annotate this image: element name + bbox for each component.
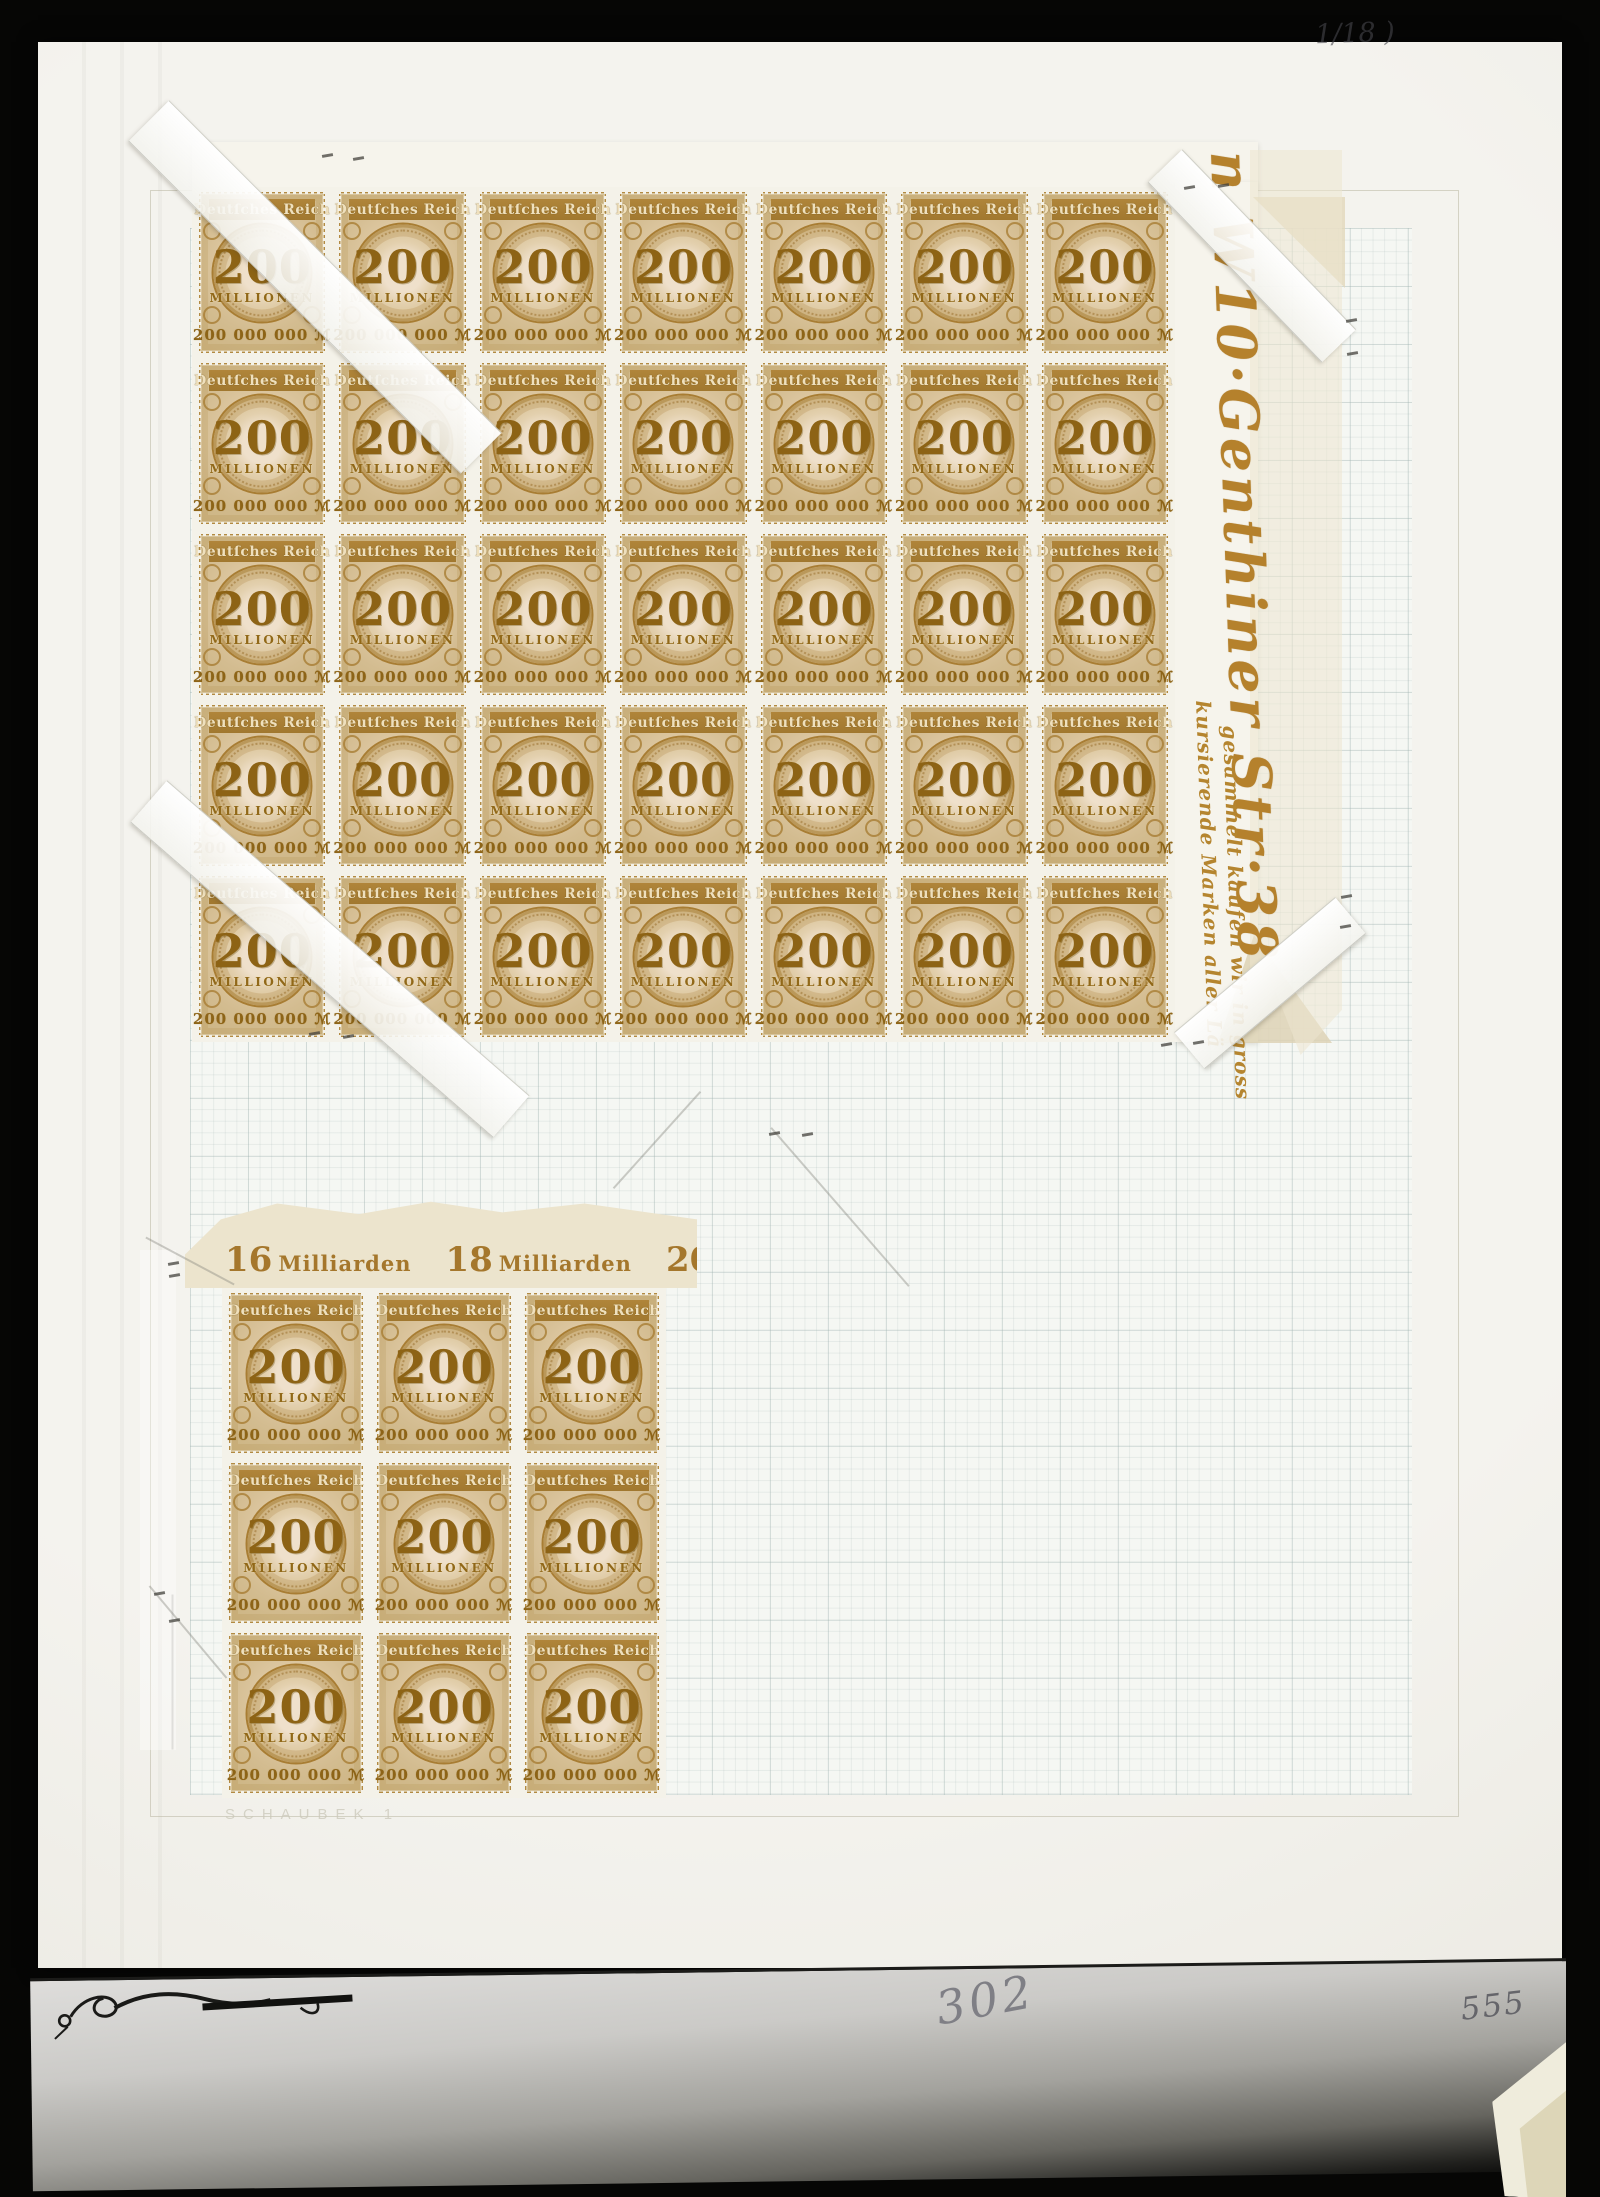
stamp-country-band: Deutſches Reich — [911, 199, 1017, 220]
stamp-cell: Deutſches Reich 200 MILLIONEN 200 000 00… — [1035, 358, 1175, 529]
stamp-value-line: 200 000 000 ℳ — [755, 326, 894, 344]
stamp-face-value: 200 — [542, 1684, 641, 1730]
stamp-face-value: 200 — [246, 1344, 345, 1390]
stamp-album-photo: 302 555 Deutſches Reich 200 MIL — [0, 0, 1600, 2197]
corner-rosette-icon — [341, 1406, 359, 1424]
stamp-country-band: Deutſches Reich — [1052, 883, 1158, 904]
corner-rosette-icon — [381, 1406, 399, 1424]
stamp-cell: Deutſches Reich 200 MILLIONEN 200 000 00… — [613, 700, 753, 871]
stamp-center: 200 MILLIONEN — [901, 391, 1027, 497]
stamp-cell: Deutſches Reich 200 MILLIONEN 200 000 00… — [370, 1628, 518, 1798]
corner-rosette-icon — [203, 990, 221, 1008]
corner-rosette-icon — [765, 306, 783, 324]
corner-rosette-icon — [1146, 477, 1164, 495]
corner-rosette-icon — [233, 1576, 251, 1594]
stamp-value-line: 200 000 000 ℳ — [755, 497, 894, 515]
stamp-value-word: MILLIONEN — [539, 1391, 644, 1405]
stamp-value-line: 200 000 000 ℳ — [227, 1766, 366, 1784]
stamp-country-band: Deutſches Reich — [771, 370, 877, 391]
stamp-cell: Deutſches Reich 200 MILLIONEN 200 000 00… — [1035, 529, 1175, 700]
stamp-face-value: 200 — [634, 415, 733, 461]
stamp-face-value: 200 — [774, 415, 873, 461]
stamp-value-line: 200 000 000 ℳ — [755, 1010, 894, 1028]
stamp-200-millionen: Deutſches Reich 200 MILLIONEN 200 000 00… — [525, 1633, 659, 1793]
corner-rosette-icon — [343, 564, 361, 582]
stamp-value-word: MILLIONEN — [350, 633, 455, 647]
stamp-value-word: MILLIONEN — [539, 1731, 644, 1745]
corner-rosette-icon — [489, 1663, 507, 1681]
corner-rosette-icon — [303, 393, 321, 411]
stamp-face-value: 200 — [774, 928, 873, 974]
stamp-value-line: 200 000 000 ℳ — [474, 326, 613, 344]
stamp-value-line: 200 000 000 ℳ — [895, 326, 1034, 344]
stamp-country-band: Deutſches Reich — [630, 712, 736, 733]
stamp-country-band: Deutſches Reich — [209, 370, 315, 391]
stamp-cell: Deutſches Reich 200 MILLIONEN 200 000 00… — [613, 358, 753, 529]
stamp-value-line: 200 000 000 ℳ — [227, 1596, 366, 1614]
corner-rosette-icon — [624, 990, 642, 1008]
stamp-country-band: Deutſches Reich — [490, 883, 596, 904]
stamp-value-word: MILLIONEN — [1052, 291, 1157, 305]
stamp-sheet-block-bottom: 16Milliarden 18Milliarden 20Milliarden D… — [185, 1200, 697, 1288]
corner-rosette-icon — [1046, 906, 1064, 924]
corner-rosette-icon — [484, 564, 502, 582]
corner-rosette-icon — [624, 477, 642, 495]
corner-rosette-icon — [584, 990, 602, 1008]
stamp-center: 200 MILLIONEN — [1042, 220, 1168, 326]
stamp-cell: Deutſches Reich 200 MILLIONEN 200 000 00… — [754, 529, 894, 700]
corner-rosette-icon — [1006, 306, 1024, 324]
stamp-cell: Deutſches Reich 200 MILLIONEN 200 000 00… — [1035, 187, 1175, 358]
corner-rosette-icon — [484, 990, 502, 1008]
stamp-200-millionen: Deutſches Reich 200 MILLIONEN 200 000 00… — [901, 534, 1027, 695]
stamp-200-millionen: Deutſches Reich 200 MILLIONEN 200 000 00… — [377, 1463, 511, 1623]
corner-rosette-icon — [1146, 735, 1164, 753]
stamp-center: 200 MILLIONEN — [377, 1321, 511, 1426]
stamp-value-line: 200 000 000 ℳ — [895, 1010, 1034, 1028]
handwritten-corner-note: 1/18 ) — [1314, 17, 1395, 51]
corner-rosette-icon — [489, 1406, 507, 1424]
stamp-country-band: Deutſches Reich — [535, 1300, 649, 1321]
stamp-center: 200 MILLIONEN — [1042, 904, 1168, 1010]
book-edge-shadow — [1566, 1890, 1600, 2197]
corner-rosette-icon — [444, 477, 462, 495]
corner-rosette-icon — [765, 990, 783, 1008]
stamp-200-millionen: Deutſches Reich 200 MILLIONEN 200 000 00… — [480, 192, 606, 353]
corner-rosette-icon — [725, 990, 743, 1008]
corner-rosette-icon — [584, 564, 602, 582]
stamp-country-band: Deutſches Reich — [349, 883, 455, 904]
stamp-value-line: 200 000 000 ℳ — [523, 1426, 662, 1444]
stamp-country-band: Deutſches Reich — [535, 1470, 649, 1491]
stamp-face-value: 200 — [494, 586, 593, 632]
stamp-country-band: Deutſches Reich — [911, 883, 1017, 904]
stamp-200-millionen: Deutſches Reich 200 MILLIONEN 200 000 00… — [620, 705, 746, 866]
stamp-country-band: Deutſches Reich — [771, 199, 877, 220]
corner-rosette-icon — [1146, 222, 1164, 240]
stamp-face-value: 200 — [246, 1684, 345, 1730]
stamp-country-band: Deutſches Reich — [630, 199, 736, 220]
stamp-value-word: MILLIONEN — [210, 975, 315, 989]
stamp-200-millionen: Deutſches Reich 200 MILLIONEN 200 000 00… — [199, 363, 325, 524]
corner-rosette-icon — [624, 906, 642, 924]
corner-rosette-icon — [1046, 477, 1064, 495]
corner-rosette-icon — [203, 906, 221, 924]
corner-rosette-icon — [381, 1323, 399, 1341]
stamp-cell: Deutſches Reich 200 MILLIONEN 200 000 00… — [894, 187, 1034, 358]
stamp-200-millionen: Deutſches Reich 200 MILLIONEN 200 000 00… — [199, 534, 325, 695]
stamp-center: 200 MILLIONEN — [901, 562, 1027, 668]
stamp-center: 200 MILLIONEN — [525, 1661, 659, 1766]
stamp-face-value: 200 — [634, 757, 733, 803]
corner-rosette-icon — [484, 906, 502, 924]
stamp-center: 200 MILLIONEN — [199, 562, 325, 668]
stamp-center: 200 MILLIONEN — [229, 1661, 363, 1766]
stamp-value-word: MILLIONEN — [771, 804, 876, 818]
stamp-country-band: Deutſches Reich — [911, 541, 1017, 562]
corner-rosette-icon — [584, 906, 602, 924]
sheet-top-margin — [192, 142, 1258, 188]
stamp-face-value: 200 — [1055, 757, 1154, 803]
stamp-face-value: 200 — [1055, 415, 1154, 461]
stamp-face-value: 200 — [915, 928, 1014, 974]
corner-rosette-icon — [725, 564, 743, 582]
stamp-face-value: 200 — [774, 757, 873, 803]
stamp-cell: Deutſches Reich 200 MILLIONEN 200 000 00… — [1035, 700, 1175, 871]
stamp-country-band: Deutſches Reich — [239, 1470, 353, 1491]
corner-rosette-icon — [1046, 735, 1064, 753]
stamp-face-value: 200 — [542, 1344, 641, 1390]
stamp-value-line: 200 000 000 ℳ — [614, 668, 753, 686]
stamp-200-millionen: Deutſches Reich 200 MILLIONEN 200 000 00… — [1042, 705, 1168, 866]
corner-rosette-icon — [489, 1493, 507, 1511]
printed-flourish-ornament — [52, 1965, 363, 2043]
stamp-center: 200 MILLIONEN — [199, 733, 325, 839]
corner-rosette-icon — [444, 648, 462, 666]
corner-rosette-icon — [905, 648, 923, 666]
stamp-cell: Deutſches Reich 200 MILLIONEN 200 000 00… — [222, 1458, 370, 1628]
stamp-cell: Deutſches Reich 200 MILLIONEN 200 000 00… — [222, 1288, 370, 1458]
corner-rosette-icon — [203, 477, 221, 495]
stamp-value-line: 200 000 000 ℳ — [333, 668, 472, 686]
stamp-200-millionen: Deutſches Reich 200 MILLIONEN 200 000 00… — [1042, 876, 1168, 1037]
stamp-face-value: 200 — [915, 244, 1014, 290]
stamp-value-word: MILLIONEN — [350, 804, 455, 818]
corner-rosette-icon — [905, 477, 923, 495]
corner-rosette-icon — [341, 1323, 359, 1341]
stamp-value-word: MILLIONEN — [912, 291, 1017, 305]
corner-rosette-icon — [1046, 648, 1064, 666]
stamp-cell: Deutſches Reich 200 MILLIONEN 200 000 00… — [518, 1288, 666, 1458]
corner-rosette-icon — [905, 990, 923, 1008]
corner-rosette-icon — [343, 648, 361, 666]
corner-rosette-icon — [865, 906, 883, 924]
corner-rosette-icon — [303, 564, 321, 582]
corner-rosette-icon — [1146, 906, 1164, 924]
stamp-center: 200 MILLIONEN — [1042, 562, 1168, 668]
milliarden-label: 18Milliarden — [445, 1240, 631, 1280]
stamp-value-line: 200 000 000 ℳ — [333, 497, 472, 515]
corner-rosette-icon — [905, 819, 923, 837]
corner-rosette-icon — [484, 819, 502, 837]
corner-rosette-icon — [444, 306, 462, 324]
stamp-200-millionen: Deutſches Reich 200 MILLIONEN 200 000 00… — [761, 534, 887, 695]
corner-rosette-icon — [1006, 648, 1024, 666]
corner-rosette-icon — [765, 222, 783, 240]
corner-rosette-icon — [1146, 564, 1164, 582]
corner-rosette-icon — [1006, 222, 1024, 240]
stamp-center: 200 MILLIONEN — [761, 904, 887, 1010]
stamp-value-word: MILLIONEN — [243, 1731, 348, 1745]
corner-rosette-icon — [765, 648, 783, 666]
stamp-face-value: 200 — [634, 244, 733, 290]
stamp-200-millionen: Deutſches Reich 200 MILLIONEN 200 000 00… — [761, 876, 887, 1037]
corner-rosette-icon — [865, 222, 883, 240]
stamp-value-line: 200 000 000 ℳ — [614, 326, 753, 344]
stamp-country-band: Deutſches Reich — [1052, 541, 1158, 562]
corner-rosette-icon — [765, 735, 783, 753]
stamp-center: 200 MILLIONEN — [761, 562, 887, 668]
stamp-face-value: 200 — [213, 415, 312, 461]
stamp-cell: Deutſches Reich 200 MILLIONEN 200 000 00… — [332, 529, 472, 700]
stamp-value-word: MILLIONEN — [490, 633, 595, 647]
stamp-country-band: Deutſches Reich — [1052, 712, 1158, 733]
stamp-country-band: Deutſches Reich — [490, 199, 596, 220]
album-page: Deutſches Reich 200 MILLIONEN 200 000 00… — [38, 42, 1562, 1968]
stamp-value-word: MILLIONEN — [771, 633, 876, 647]
corner-rosette-icon — [1046, 306, 1064, 324]
corner-rosette-icon — [303, 735, 321, 753]
corner-rosette-icon — [725, 819, 743, 837]
stamp-country-band: Deutſches Reich — [239, 1300, 353, 1321]
stamp-200-millionen: Deutſches Reich 200 MILLIONEN 200 000 00… — [339, 705, 465, 866]
corner-rosette-icon — [203, 306, 221, 324]
stamp-country-band: Deutſches Reich — [1052, 199, 1158, 220]
stamp-200-millionen: Deutſches Reich 200 MILLIONEN 200 000 00… — [339, 534, 465, 695]
stamp-value-line: 200 000 000 ℳ — [1035, 1010, 1174, 1028]
stamp-value-line: 200 000 000 ℳ — [193, 326, 332, 344]
stamp-200-millionen: Deutſches Reich 200 MILLIONEN 200 000 00… — [901, 705, 1027, 866]
stamp-face-value: 200 — [213, 757, 312, 803]
stamp-value-word: MILLIONEN — [243, 1561, 348, 1575]
stamp-value-word: MILLIONEN — [631, 633, 736, 647]
stamp-cell: Deutſches Reich 200 MILLIONEN 200 000 00… — [1035, 871, 1175, 1042]
stamp-cell: Deutſches Reich 200 MILLIONEN 200 000 00… — [894, 871, 1034, 1042]
corner-rosette-icon — [529, 1576, 547, 1594]
stamp-cell: Deutſches Reich 200 MILLIONEN 200 000 00… — [473, 187, 613, 358]
corner-rosette-icon — [865, 735, 883, 753]
stamp-face-value: 200 — [213, 586, 312, 632]
corner-rosette-icon — [1006, 819, 1024, 837]
stamp-cell: Deutſches Reich 200 MILLIONEN 200 000 00… — [332, 700, 472, 871]
stamp-value-line: 200 000 000 ℳ — [895, 839, 1034, 857]
corner-rosette-icon — [341, 1663, 359, 1681]
stamp-value-word: MILLIONEN — [243, 1391, 348, 1405]
stamp-value-line: 200 000 000 ℳ — [474, 1010, 613, 1028]
stamp-value-line: 200 000 000 ℳ — [755, 839, 894, 857]
stamp-200-millionen: Deutſches Reich 200 MILLIONEN 200 000 00… — [229, 1293, 363, 1453]
stamp-value-word: MILLIONEN — [210, 462, 315, 476]
stamp-value-word: MILLIONEN — [539, 1561, 644, 1575]
corner-rosette-icon — [484, 222, 502, 240]
stamp-value-word: MILLIONEN — [210, 804, 315, 818]
stamp-center: 200 MILLIONEN — [620, 562, 746, 668]
stamp-value-line: 200 000 000 ℳ — [755, 668, 894, 686]
corner-rosette-icon — [1006, 990, 1024, 1008]
corner-rosette-icon — [725, 477, 743, 495]
stamp-country-band: Deutſches Reich — [490, 370, 596, 391]
stamp-value-line: 200 000 000 ℳ — [614, 839, 753, 857]
stamp-200-millionen: Deutſches Reich 200 MILLIONEN 200 000 00… — [1042, 363, 1168, 524]
corner-rosette-icon — [765, 819, 783, 837]
corner-rosette-icon — [341, 1746, 359, 1764]
corner-rosette-icon — [203, 564, 221, 582]
stamp-200-millionen: Deutſches Reich 200 MILLIONEN 200 000 00… — [620, 192, 746, 353]
corner-rosette-icon — [233, 1493, 251, 1511]
stamp-face-value: 200 — [634, 928, 733, 974]
stamp-center: 200 MILLIONEN — [901, 904, 1027, 1010]
stamp-country-band: Deutſches Reich — [349, 541, 455, 562]
stamp-face-value: 200 — [915, 757, 1014, 803]
corner-rosette-icon — [1006, 906, 1024, 924]
corner-rosette-icon — [444, 906, 462, 924]
corner-rosette-icon — [725, 735, 743, 753]
stamp-cell: Deutſches Reich 200 MILLIONEN 200 000 00… — [613, 529, 753, 700]
stamp-face-value: 200 — [353, 586, 452, 632]
corner-rosette-icon — [865, 819, 883, 837]
stamp-center: 200 MILLIONEN — [229, 1321, 363, 1426]
corner-rosette-icon — [905, 906, 923, 924]
stamp-country-band: Deutſches Reich — [630, 541, 736, 562]
stamp-cell: Deutſches Reich 200 MILLIONEN 200 000 00… — [222, 1628, 370, 1798]
corner-rosette-icon — [584, 648, 602, 666]
stamp-value-word: MILLIONEN — [490, 804, 595, 818]
corner-rosette-icon — [484, 477, 502, 495]
stamp-country-band: Deutſches Reich — [911, 712, 1017, 733]
stamp-center: 200 MILLIONEN — [525, 1321, 659, 1426]
corner-rosette-icon — [584, 477, 602, 495]
corner-rosette-icon — [444, 990, 462, 1008]
corner-rosette-icon — [624, 819, 642, 837]
stamp-cell: Deutſches Reich 200 MILLIONEN 200 000 00… — [473, 358, 613, 529]
stamp-value-line: 200 000 000 ℳ — [474, 839, 613, 857]
stamp-200-millionen: Deutſches Reich 200 MILLIONEN 200 000 00… — [480, 363, 606, 524]
corner-rosette-icon — [444, 735, 462, 753]
corner-rosette-icon — [341, 1576, 359, 1594]
stamp-value-word: MILLIONEN — [490, 975, 595, 989]
sheet-counting-margin: 16Milliarden 18Milliarden 20Milliarden — [185, 1200, 697, 1288]
stamp-face-value: 200 — [774, 586, 873, 632]
corner-rosette-icon — [1046, 819, 1064, 837]
corner-rosette-icon — [343, 819, 361, 837]
stamp-200-millionen: Deutſches Reich 200 MILLIONEN 200 000 00… — [620, 876, 746, 1037]
stamp-200-millionen: Deutſches Reich 200 MILLIONEN 200 000 00… — [377, 1633, 511, 1793]
stamp-cell: Deutſches Reich 200 MILLIONEN 200 000 00… — [613, 187, 753, 358]
stamp-value-word: MILLIONEN — [490, 462, 595, 476]
corner-rosette-icon — [489, 1746, 507, 1764]
corner-rosette-icon — [1146, 819, 1164, 837]
corner-rosette-icon — [489, 1323, 507, 1341]
bottom-sheet-grid: Deutſches Reich 200 MILLIONEN 200 000 00… — [222, 1288, 666, 1798]
corner-rosette-icon — [343, 906, 361, 924]
stamp-200-millionen: Deutſches Reich 200 MILLIONEN 200 000 00… — [901, 876, 1027, 1037]
corner-rosette-icon — [203, 735, 221, 753]
stamp-value-line: 200 000 000 ℳ — [193, 1010, 332, 1028]
stamp-center: 200 MILLIONEN — [1042, 391, 1168, 497]
corner-rosette-icon — [637, 1323, 655, 1341]
corner-rosette-icon — [529, 1493, 547, 1511]
corner-rosette-icon — [444, 819, 462, 837]
corner-rosette-icon — [203, 393, 221, 411]
stamp-value-line: 200 000 000 ℳ — [1035, 668, 1174, 686]
corner-rosette-icon — [865, 477, 883, 495]
stamp-center: 200 MILLIONEN — [339, 733, 465, 839]
stamp-face-value: 200 — [353, 244, 452, 290]
corner-rosette-icon — [341, 1493, 359, 1511]
stamp-center: 200 MILLIONEN — [620, 733, 746, 839]
corner-rosette-icon — [303, 477, 321, 495]
corner-rosette-icon — [624, 735, 642, 753]
corner-rosette-icon — [865, 564, 883, 582]
stamp-face-value: 200 — [634, 586, 733, 632]
corner-rosette-icon — [1046, 222, 1064, 240]
stamp-value-word: MILLIONEN — [912, 462, 1017, 476]
stamp-200-millionen: Deutſches Reich 200 MILLIONEN 200 000 00… — [1042, 534, 1168, 695]
stamp-200-millionen: Deutſches Reich 200 MILLIONEN 200 000 00… — [480, 705, 606, 866]
stamp-value-word: MILLIONEN — [631, 804, 736, 818]
stamp-value-word: MILLIONEN — [210, 633, 315, 647]
stamp-200-millionen: Deutſches Reich 200 MILLIONEN 200 000 00… — [620, 534, 746, 695]
stamp-200-millionen: Deutſches Reich 200 MILLIONEN 200 000 00… — [761, 705, 887, 866]
corner-rosette-icon — [303, 819, 321, 837]
corner-rosette-icon — [1146, 306, 1164, 324]
corner-rosette-icon — [484, 306, 502, 324]
stamp-center: 200 MILLIONEN — [620, 904, 746, 1010]
stamp-200-millionen: Deutſches Reich 200 MILLIONEN 200 000 00… — [480, 534, 606, 695]
corner-rosette-icon — [725, 393, 743, 411]
stamp-value-line: 200 000 000 ℳ — [614, 1010, 753, 1028]
corner-rosette-icon — [1046, 564, 1064, 582]
corner-rosette-icon — [637, 1663, 655, 1681]
stamp-value-word: MILLIONEN — [631, 462, 736, 476]
stamp-country-band: Deutſches Reich — [239, 1640, 353, 1661]
stamp-value-line: 200 000 000 ℳ — [375, 1596, 514, 1614]
stamp-center: 200 MILLIONEN — [377, 1661, 511, 1766]
stamp-cell: Deutſches Reich 200 MILLIONEN 200 000 00… — [613, 871, 753, 1042]
stamp-center: 200 MILLIONEN — [901, 733, 1027, 839]
stamp-center: 200 MILLIONEN — [199, 391, 325, 497]
corner-rosette-icon — [584, 735, 602, 753]
pocket-crease-line — [172, 1595, 174, 1750]
stamp-200-millionen: Deutſches Reich 200 MILLIONEN 200 000 00… — [229, 1463, 363, 1623]
stamp-value-word: MILLIONEN — [771, 975, 876, 989]
handwritten-page-number: 302 — [931, 1964, 1039, 2036]
album-imprint: SCHAUBEK 1 — [225, 1806, 400, 1823]
stamp-face-value: 200 — [494, 928, 593, 974]
corner-rosette-icon — [725, 906, 743, 924]
stamp-center: 200 MILLIONEN — [480, 733, 606, 839]
corner-rosette-icon — [905, 222, 923, 240]
stamp-face-value: 200 — [353, 757, 452, 803]
stamp-200-millionen: Deutſches Reich 200 MILLIONEN 200 000 00… — [525, 1293, 659, 1453]
corner-rosette-icon — [905, 735, 923, 753]
stamp-200-millionen: Deutſches Reich 200 MILLIONEN 200 000 00… — [1042, 192, 1168, 353]
stamp-center: 200 MILLIONEN — [480, 391, 606, 497]
stamp-center: 200 MILLIONEN — [761, 220, 887, 326]
corner-rosette-icon — [529, 1663, 547, 1681]
stamp-face-value: 200 — [1055, 928, 1154, 974]
corner-rosette-icon — [584, 306, 602, 324]
